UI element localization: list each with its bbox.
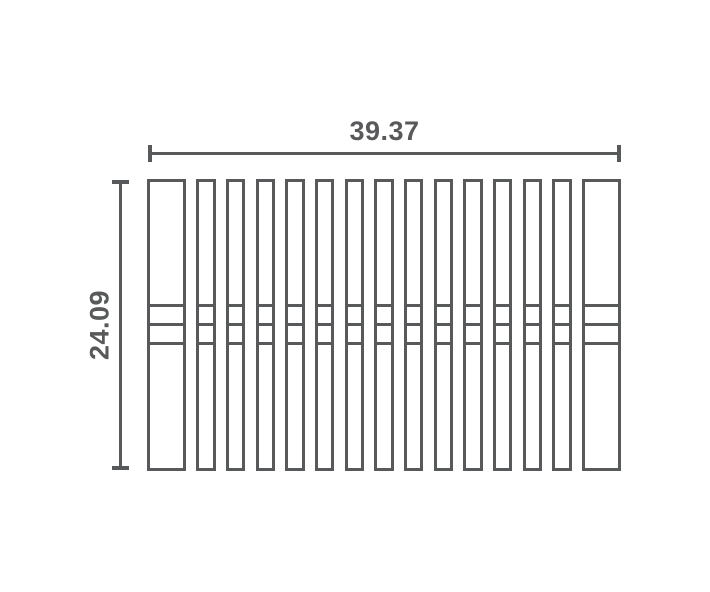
crossbar bbox=[526, 304, 540, 307]
slat bbox=[345, 179, 365, 471]
crossbar bbox=[466, 342, 480, 345]
width-dimension-label: 39.37 bbox=[148, 118, 621, 145]
crossbar bbox=[288, 323, 302, 326]
slat bbox=[196, 179, 216, 471]
crossbar bbox=[496, 323, 510, 326]
height-dimension-top-tick bbox=[112, 180, 129, 184]
crossbar bbox=[496, 304, 510, 307]
slat bbox=[493, 179, 513, 471]
slat bbox=[523, 179, 543, 471]
crossbar bbox=[199, 342, 213, 345]
crossbar bbox=[407, 304, 421, 307]
slat bbox=[285, 179, 305, 471]
slat bbox=[147, 179, 186, 471]
crossbar bbox=[199, 323, 213, 326]
slat bbox=[315, 179, 335, 471]
crossbar bbox=[585, 304, 618, 307]
crossbar bbox=[466, 304, 480, 307]
crossbar bbox=[555, 323, 569, 326]
slat bbox=[226, 179, 246, 471]
slat bbox=[582, 179, 621, 471]
crossbar bbox=[318, 342, 332, 345]
crossbar bbox=[150, 342, 183, 345]
crossbar bbox=[437, 342, 451, 345]
crossbar bbox=[288, 304, 302, 307]
crossbar bbox=[229, 342, 243, 345]
slat bbox=[404, 179, 424, 471]
crossbar bbox=[437, 304, 451, 307]
height-dimension-label: 24.09 bbox=[87, 290, 114, 360]
crossbar bbox=[407, 323, 421, 326]
crossbar bbox=[150, 304, 183, 307]
rack bbox=[147, 179, 621, 471]
crossbar bbox=[377, 323, 391, 326]
crossbar bbox=[288, 342, 302, 345]
crossbar bbox=[407, 342, 421, 345]
height-dimension-line bbox=[119, 180, 122, 470]
slat bbox=[374, 179, 394, 471]
crossbar bbox=[526, 342, 540, 345]
crossbar bbox=[526, 323, 540, 326]
height-dimension-bottom-tick bbox=[112, 466, 129, 470]
crossbar bbox=[259, 342, 273, 345]
crossbar bbox=[555, 304, 569, 307]
slat bbox=[552, 179, 572, 471]
width-dimension-left-tick bbox=[148, 145, 152, 162]
crossbar bbox=[259, 323, 273, 326]
crossbar bbox=[466, 323, 480, 326]
slat bbox=[434, 179, 454, 471]
crossbar bbox=[377, 342, 391, 345]
crossbar bbox=[318, 323, 332, 326]
crossbar bbox=[259, 304, 273, 307]
slat bbox=[256, 179, 276, 471]
crossbar bbox=[348, 342, 362, 345]
crossbar bbox=[555, 342, 569, 345]
crossbar bbox=[199, 304, 213, 307]
crossbar bbox=[496, 342, 510, 345]
crossbar bbox=[377, 304, 391, 307]
slat bbox=[463, 179, 483, 471]
crossbar bbox=[229, 304, 243, 307]
crossbar bbox=[437, 323, 451, 326]
crossbar bbox=[348, 304, 362, 307]
crossbar bbox=[348, 323, 362, 326]
drawing-canvas: 39.37 24.09 bbox=[0, 0, 710, 592]
crossbar bbox=[585, 323, 618, 326]
crossbar bbox=[585, 342, 618, 345]
crossbar bbox=[318, 304, 332, 307]
crossbar bbox=[229, 323, 243, 326]
width-dimension-right-tick bbox=[617, 145, 621, 162]
crossbar bbox=[150, 323, 183, 326]
width-dimension-line bbox=[148, 152, 621, 155]
